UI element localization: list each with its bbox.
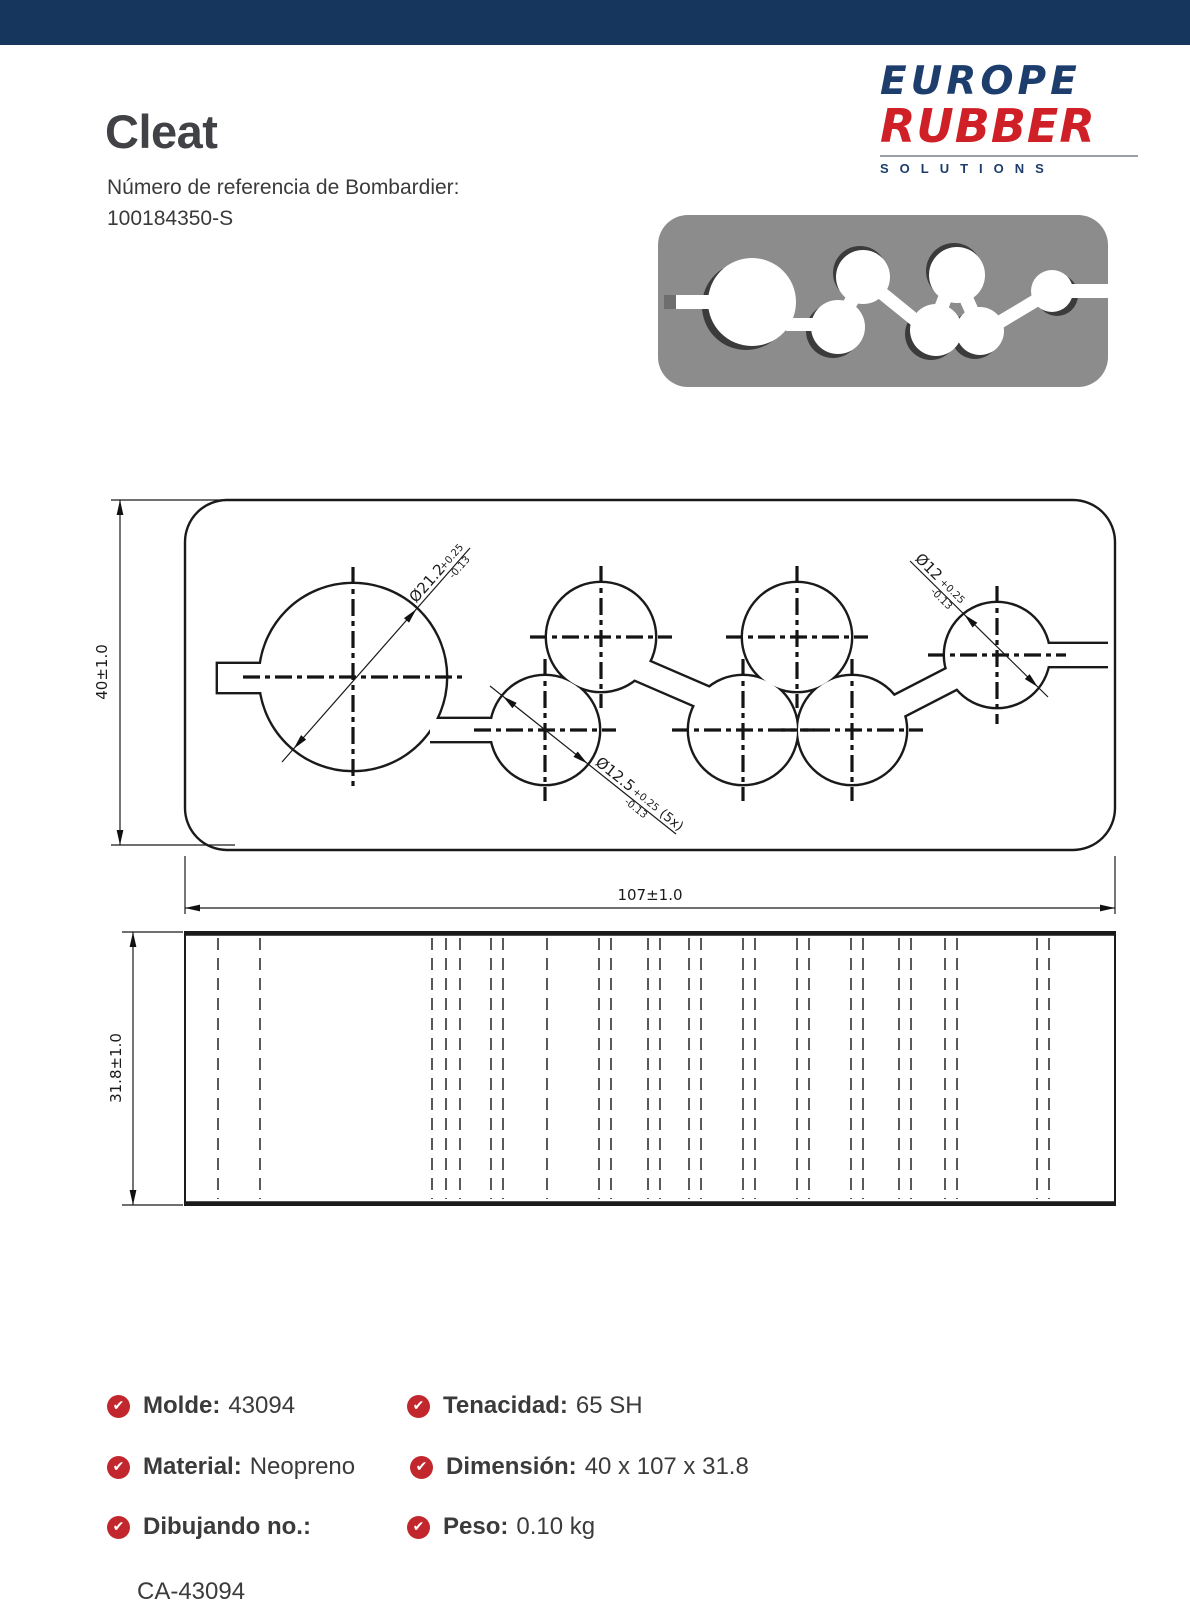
check-icon: ✔ — [107, 1456, 130, 1479]
company-logo: EUROPE RUBBER SOLUTIONS — [880, 62, 1148, 175]
logo-solutions: SOLUTIONS — [880, 162, 1148, 175]
spec-label: Material: — [143, 1453, 242, 1481]
check-icon: ✔ — [410, 1456, 433, 1479]
spec-value: Neopreno — [250, 1453, 355, 1481]
dim-107-label: 107±1.0 — [617, 886, 682, 904]
header-bar — [0, 0, 1190, 45]
spec-material: ✔ Material: Neopreno — [107, 1453, 355, 1481]
spec-value: 0.10 kg — [516, 1513, 595, 1541]
dim-318-lines — [122, 932, 183, 1205]
check-icon: ✔ — [107, 1395, 130, 1418]
logo-divider — [880, 155, 1138, 157]
spec-label: Dibujando no.: — [143, 1513, 311, 1541]
dim-318-label: 31.8±1.0 — [107, 1033, 125, 1103]
product-render — [650, 205, 1115, 395]
reference-block: Número de referencia de Bombardier: 1001… — [107, 172, 460, 234]
spec-label: Tenacidad: — [443, 1392, 568, 1420]
logo-europe: EUROPE — [880, 62, 1148, 101]
spec-dibujando-value: CA-43094 — [137, 1578, 245, 1602]
spec-dimension: ✔ Dimensión: 40 x 107 x 31.8 — [410, 1453, 749, 1481]
spec-label: Peso: — [443, 1513, 508, 1541]
spec-tenacidad: ✔ Tenacidad: 65 SH — [407, 1392, 643, 1420]
spec-value: 43094 — [228, 1392, 295, 1420]
spec-dibujando: ✔ Dibujando no.: — [107, 1513, 311, 1541]
spec-label: Molde: — [143, 1392, 220, 1420]
spec-value: 65 SH — [576, 1392, 643, 1420]
logo-rubber: RUBBER — [880, 103, 1148, 149]
reference-label: Número de referencia de Bombardier: — [107, 172, 460, 203]
page-title: Cleat — [105, 104, 217, 159]
dim-40-label: 40±1.0 — [93, 644, 111, 700]
reference-number: 100184350-S — [107, 203, 460, 234]
check-icon: ✔ — [407, 1395, 430, 1418]
spec-peso: ✔ Peso: 0.10 kg — [407, 1513, 595, 1541]
technical-drawing-views: Ø21.2 +0.25 -0.13 Ø12.5 +0.25 -0.13 (5x)… — [0, 460, 1190, 1230]
spec-molde: ✔ Molde: 43094 — [107, 1392, 295, 1420]
datasheet-page: Cleat Número de referencia de Bombardier… — [0, 0, 1190, 1602]
spec-label: Dimensión: — [446, 1453, 577, 1481]
dim-107-lines — [185, 856, 1115, 914]
side-view-outline — [185, 932, 1115, 1205]
check-icon: ✔ — [107, 1516, 130, 1539]
spec-value: 40 x 107 x 31.8 — [585, 1453, 749, 1481]
check-icon: ✔ — [407, 1516, 430, 1539]
